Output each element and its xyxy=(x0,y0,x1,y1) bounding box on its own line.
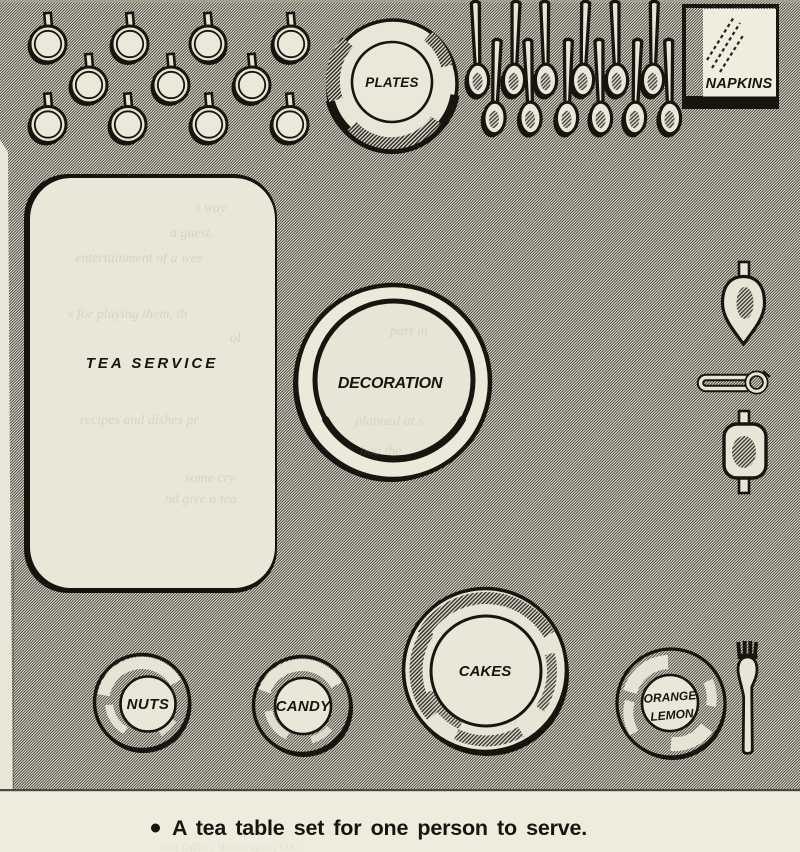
svg-text:CAKES: CAKES xyxy=(459,663,512,680)
svg-text:PLATES: PLATES xyxy=(365,75,418,90)
svg-text:hou the: hou the xyxy=(360,444,402,459)
svg-text:NUTS: NUTS xyxy=(127,696,170,713)
svg-text:part in: part in xyxy=(389,324,428,339)
svg-text:recipes and dishes pr: recipes and dishes pr xyxy=(80,413,199,428)
svg-text:NAPKINS: NAPKINS xyxy=(706,76,773,92)
svg-text:a guest.: a guest. xyxy=(170,226,214,241)
svg-text:ting Office, Washington, D.C.: ting Office, Washington, D.C. xyxy=(160,840,302,852)
svg-text:planned at s: planned at s xyxy=(354,414,424,429)
svg-text:DECORATION: DECORATION xyxy=(338,375,443,392)
svg-text:some cry: some cry xyxy=(185,471,236,486)
svg-text:s way: s way xyxy=(195,201,227,216)
svg-text:ol.: ol. xyxy=(230,331,244,346)
svg-text:TEA SERVICE: TEA SERVICE xyxy=(86,355,218,372)
svg-text:A tea table set for one person: A tea table set for one person to serve. xyxy=(172,816,587,840)
svg-text:nd give a tea: nd give a tea xyxy=(165,492,237,507)
svg-text:entertainment of a wee: entertainment of a wee xyxy=(75,251,203,266)
svg-text:CANDY: CANDY xyxy=(276,698,333,715)
svg-text:s for playing them, th: s for playing them, th xyxy=(68,307,187,322)
